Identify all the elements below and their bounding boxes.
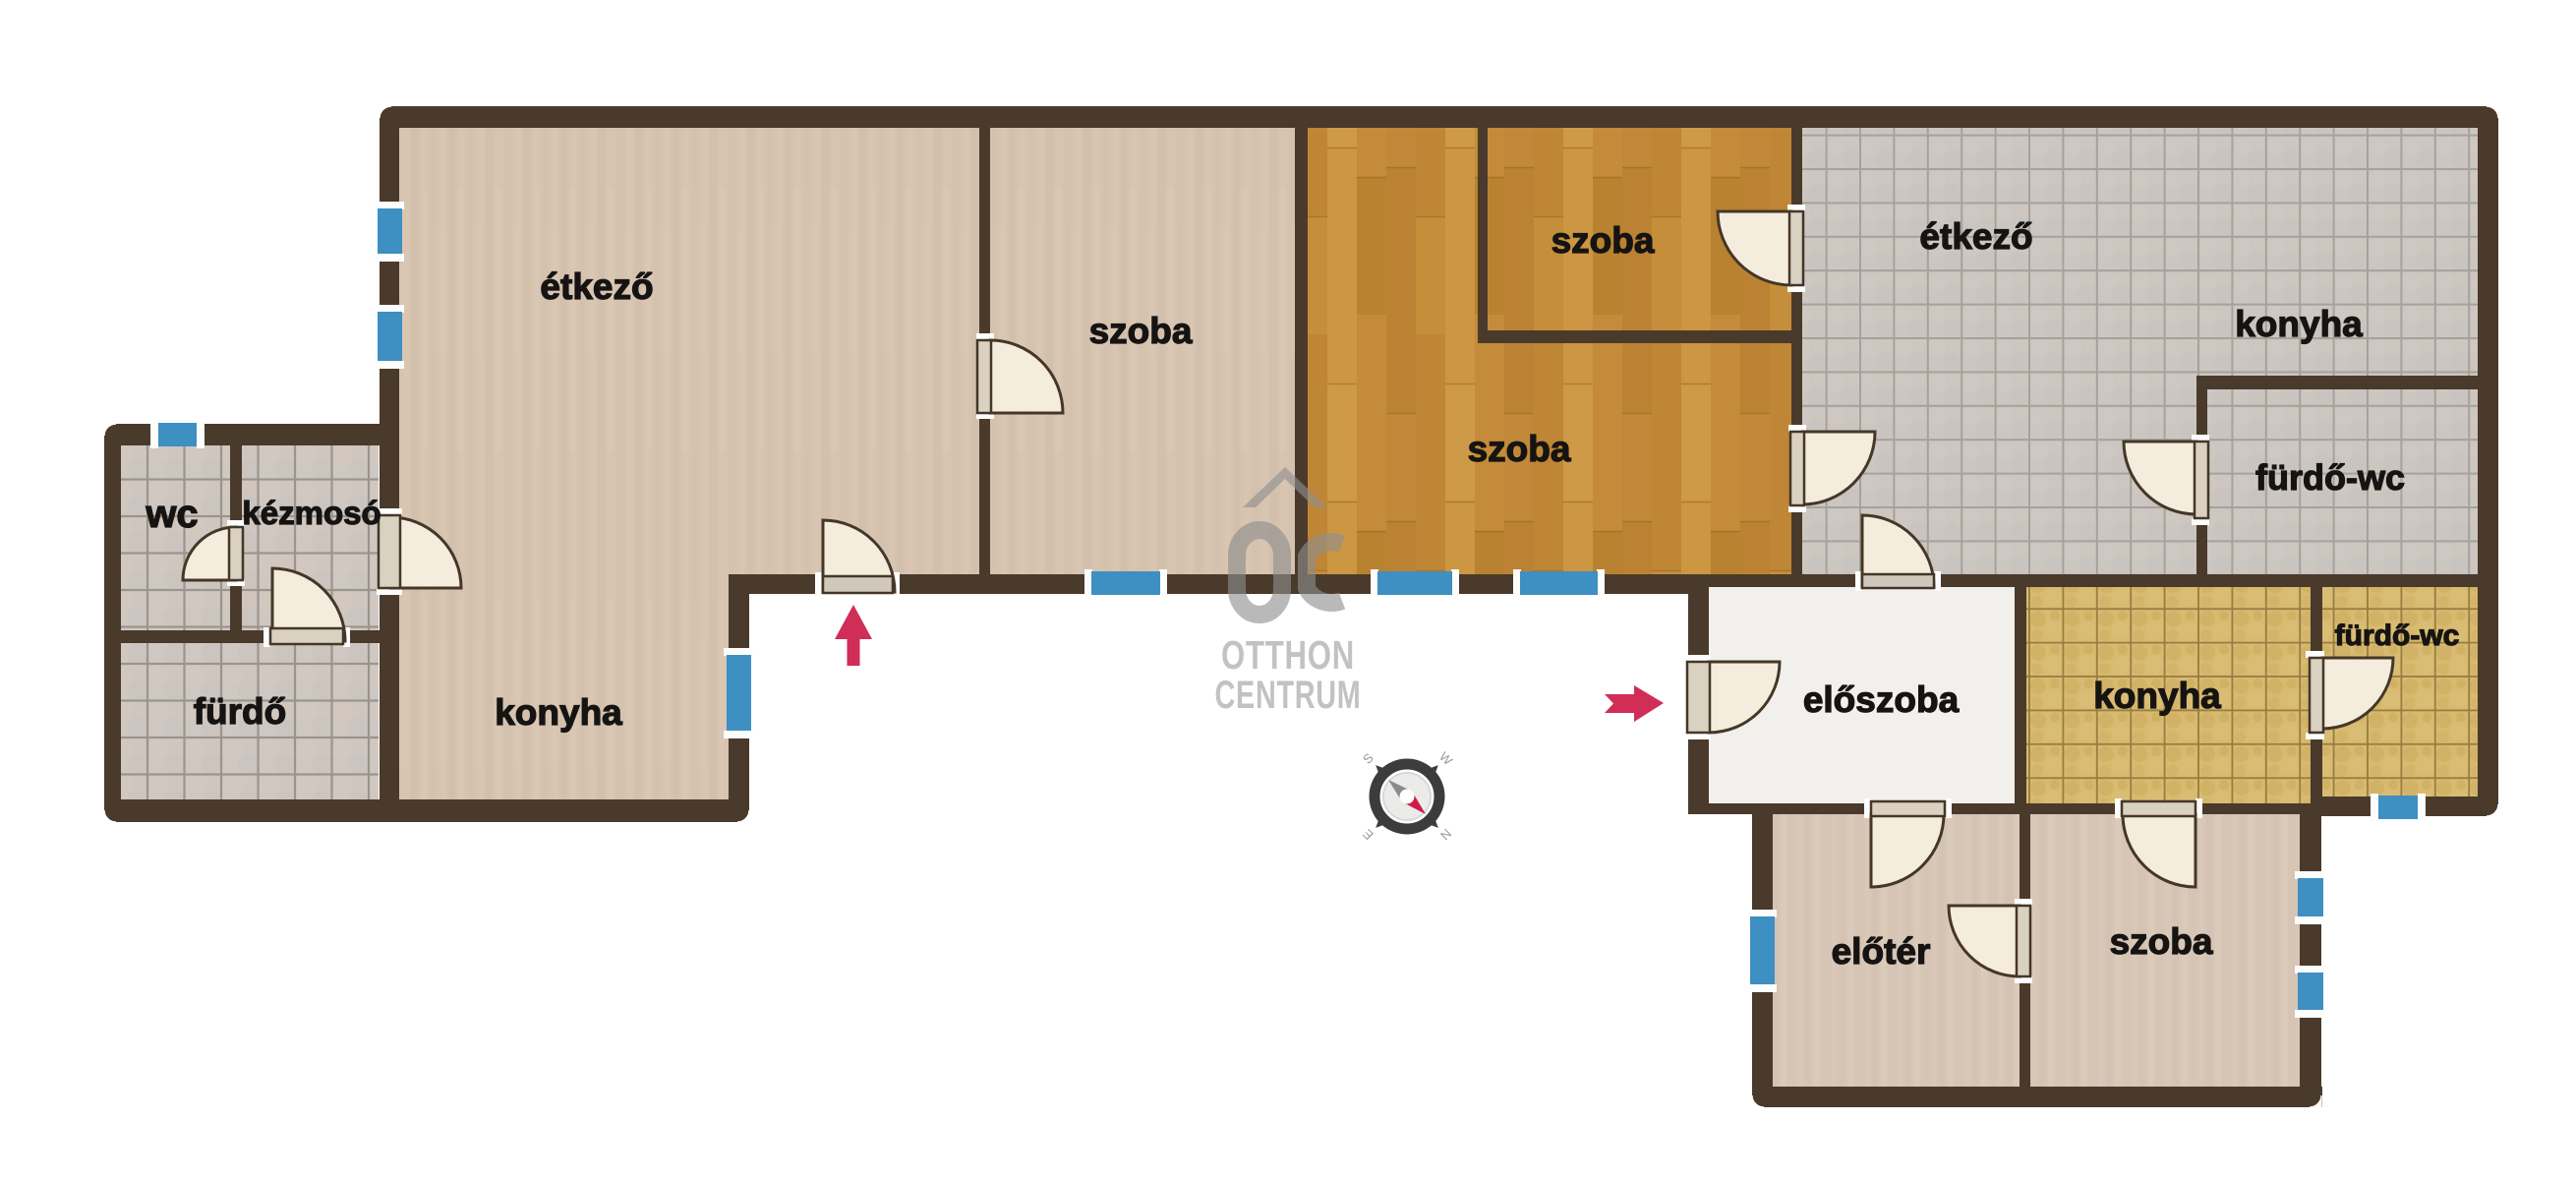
svg-text:CENTRUM: CENTRUM: [1215, 673, 1362, 717]
svg-text:konyha: konyha: [2093, 676, 2221, 716]
svg-text:kézmosó: kézmosó: [242, 495, 381, 531]
svg-text:étkező: étkező: [540, 266, 653, 307]
svg-text:szoba: szoba: [2110, 921, 2213, 962]
svg-text:szoba: szoba: [1468, 429, 1571, 469]
svg-text:szoba: szoba: [1089, 311, 1193, 351]
svg-text:szoba: szoba: [1551, 220, 1655, 261]
svg-text:fürdő: fürdő: [194, 691, 287, 732]
svg-text:étkező: étkező: [1919, 216, 2032, 257]
svg-text:OTTHON: OTTHON: [1221, 632, 1355, 678]
svg-text:fürdő-wc: fürdő-wc: [2255, 457, 2405, 498]
svg-text:előszoba: előszoba: [1803, 679, 1960, 720]
svg-text:konyha: konyha: [495, 692, 622, 733]
svg-text:konyha: konyha: [2235, 304, 2363, 344]
svg-text:wc: wc: [145, 493, 198, 536]
svg-text:előtér: előtér: [1832, 931, 1931, 972]
svg-text:fürdő-wc: fürdő-wc: [2335, 619, 2460, 652]
